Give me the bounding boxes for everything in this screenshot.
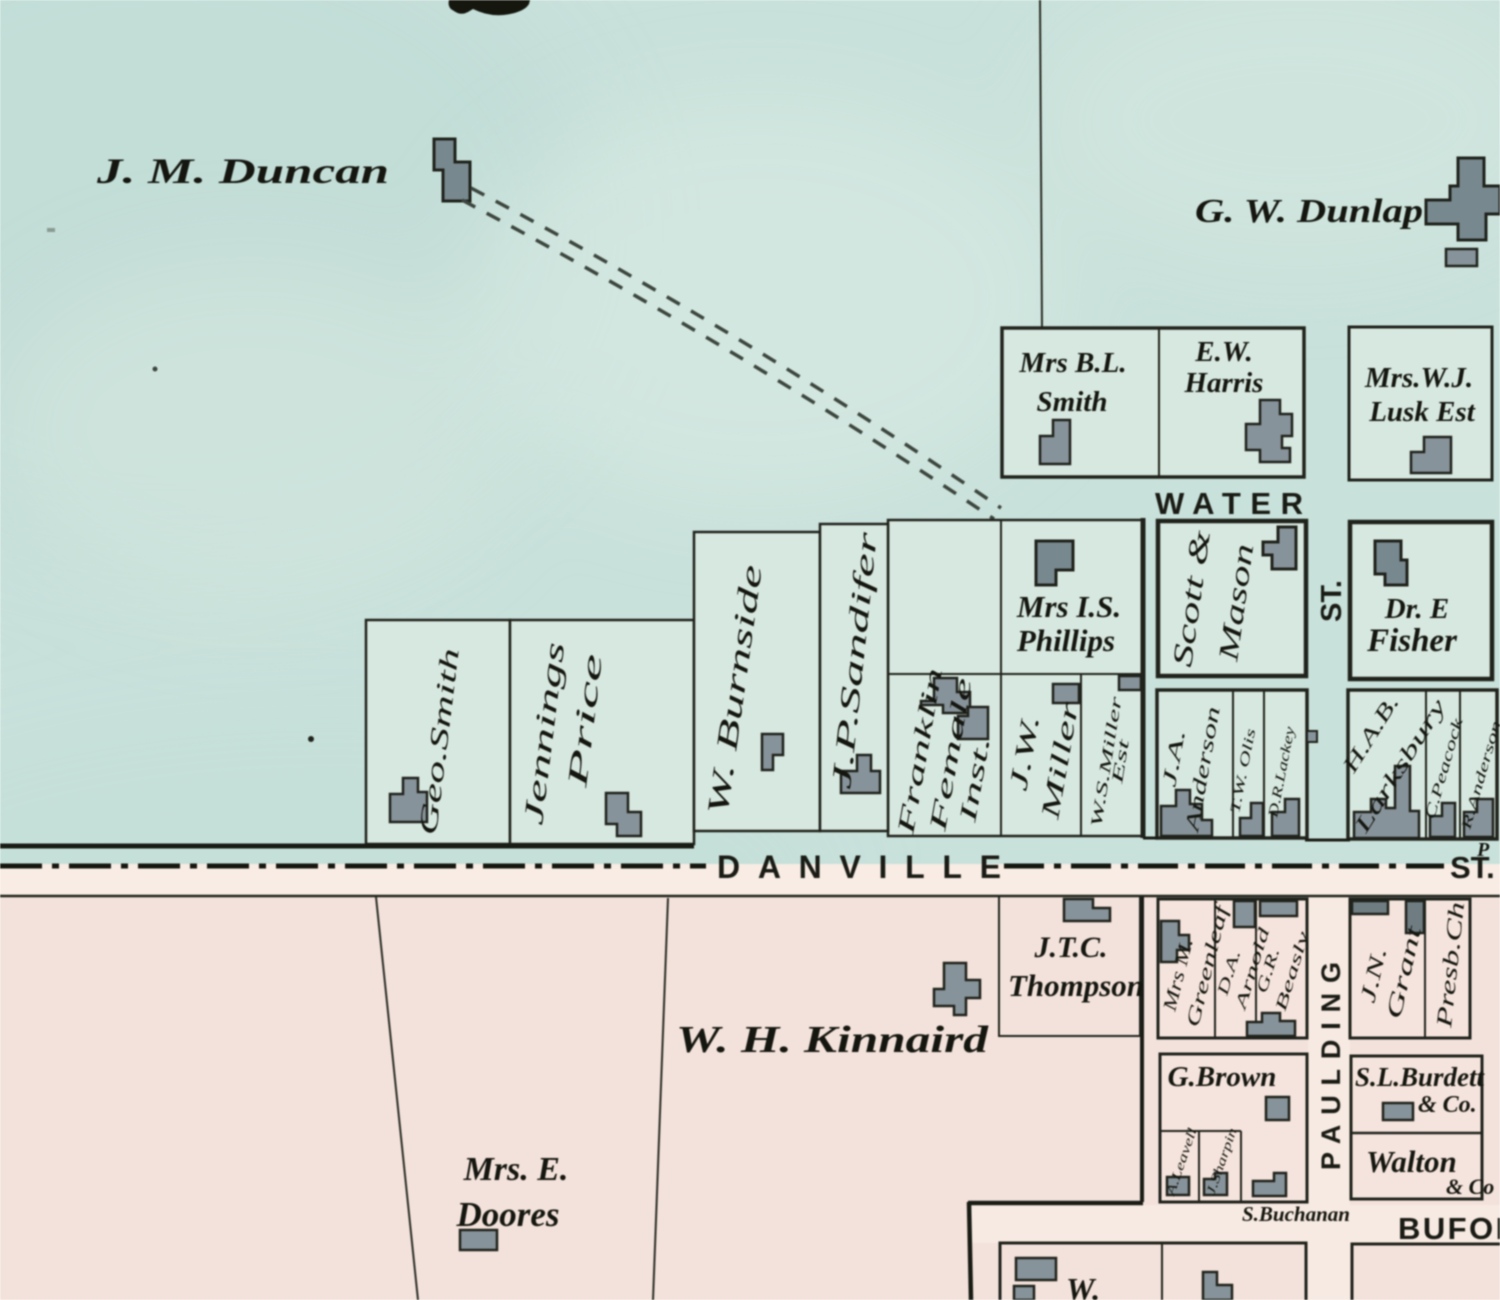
svg-text:Fisher: Fisher: [1366, 623, 1458, 659]
svg-text:W.: W.: [1066, 1271, 1100, 1300]
svg-text:G.Brown: G.Brown: [1168, 1061, 1277, 1093]
svg-text:Thompson: Thompson: [1008, 968, 1144, 1003]
svg-text:Mrs B.L.: Mrs B.L.: [1018, 347, 1126, 379]
svg-text:Mrs.W.J.: Mrs.W.J.: [1364, 362, 1473, 394]
svg-text:Smith: Smith: [1037, 386, 1108, 418]
svg-text:S.Buchanan: S.Buchanan: [1242, 1202, 1350, 1226]
svg-text:Mrs. E.: Mrs. E.: [463, 1151, 569, 1188]
svg-text:& Co: & Co: [1446, 1174, 1494, 1199]
svg-text:BUFOR: BUFOR: [1398, 1211, 1500, 1246]
svg-text:ST.: ST.: [1316, 580, 1348, 622]
svg-text:Harris: Harris: [1184, 367, 1264, 399]
svg-text:DANVILLE: DANVILLE: [717, 849, 1001, 885]
svg-text:Dr. E: Dr. E: [1384, 593, 1449, 625]
svg-text:Lusk Est: Lusk Est: [1368, 396, 1476, 428]
svg-text:J.T.C.: J.T.C.: [1033, 931, 1107, 964]
svg-text:J. M. Duncan: J. M. Duncan: [96, 151, 389, 191]
svg-text:Mrs I.S.: Mrs I.S.: [1016, 589, 1121, 624]
svg-text:ST.: ST.: [1450, 850, 1495, 885]
svg-text:W. H. Kinnaird: W. H. Kinnaird: [676, 1019, 989, 1061]
svg-text:S.L.Burdett: S.L.Burdett: [1355, 1062, 1486, 1092]
svg-text:Walton: Walton: [1366, 1144, 1457, 1179]
svg-text:G. W. Dunlap: G. W. Dunlap: [1195, 193, 1423, 230]
svg-text:WATER: WATER: [1155, 486, 1303, 521]
svg-text:& Co.: & Co.: [1418, 1092, 1477, 1118]
svg-text:Doores: Doores: [455, 1195, 559, 1234]
svg-text:E.W.: E.W.: [1194, 336, 1252, 368]
svg-text:Phillips: Phillips: [1016, 623, 1115, 658]
